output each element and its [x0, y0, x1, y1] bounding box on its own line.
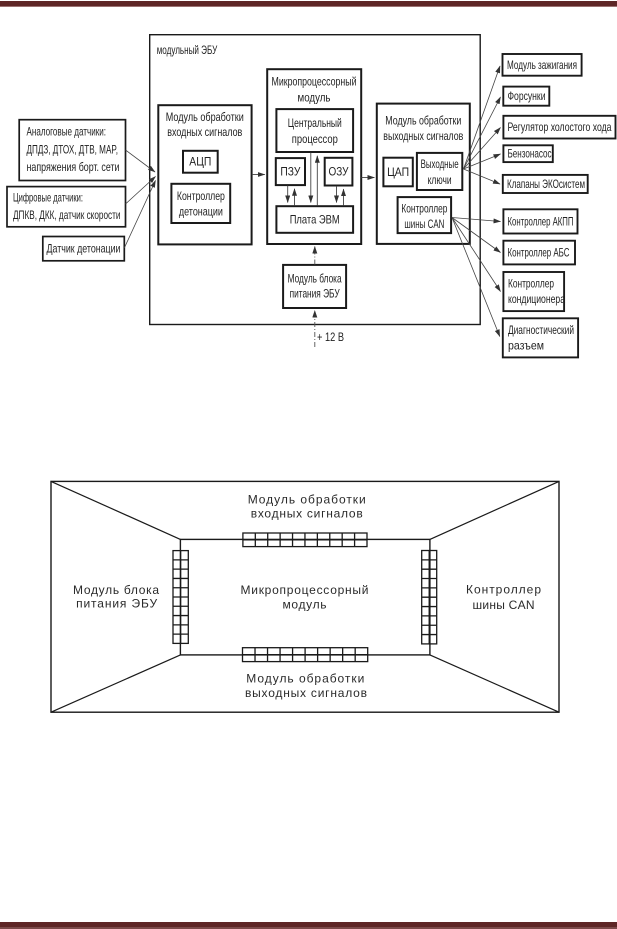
svg-text:Микропроцессорный: Микропроцессорный [272, 74, 357, 88]
svg-text:АЦП: АЦП [189, 155, 211, 169]
svg-text:Регулятор холостого хода: Регулятор холостого хода [508, 120, 612, 134]
svg-text:разъем: разъем [508, 338, 544, 352]
svg-text:процессор: процессор [292, 132, 338, 146]
svg-text:модульный ЭБУ: модульный ЭБУ [157, 43, 218, 57]
svg-text:ПЗУ: ПЗУ [280, 164, 300, 178]
svg-text:Модуль блока: Модуль блока [288, 272, 342, 286]
svg-text:Модуль обработки: Модуль обработки [246, 671, 364, 685]
svg-text:Контроллер: Контроллер [177, 189, 225, 203]
svg-text:детонации: детонации [179, 204, 223, 218]
svg-text:Диагностический: Диагностический [508, 323, 574, 337]
svg-text:шины CAN: шины CAN [473, 598, 535, 612]
svg-text:кондиционера: кондиционера [508, 292, 565, 306]
svg-text:Модуль блока: Модуль блока [73, 583, 159, 597]
svg-text:Форсунки: Форсунки [508, 89, 546, 103]
svg-text:Бензонасос: Бензонасос [508, 147, 552, 161]
svg-text:Цифровые датчики:: Цифровые датчики: [13, 190, 83, 204]
svg-text:питания ЭБУ: питания ЭБУ [290, 287, 340, 301]
svg-text:Выходные: Выходные [421, 157, 459, 171]
svg-text:ДПДЗ, ДТОХ, ДТВ, MAP,: ДПДЗ, ДТОХ, ДТВ, MAP, [27, 142, 119, 156]
svg-text:Датчик детонации: Датчик детонации [47, 241, 121, 255]
svg-text:ДПКВ, ДКК, датчик скорости: ДПКВ, ДКК, датчик скорости [13, 208, 121, 222]
svg-text:входных сигналов: входных сигналов [167, 125, 242, 139]
svg-text:Модуль зажигания: Модуль зажигания [507, 58, 577, 72]
svg-text:Модуль обработки: Модуль обработки [166, 110, 244, 124]
svg-text:ОЗУ: ОЗУ [329, 164, 349, 178]
svg-text:шины CAN: шины CAN [404, 217, 444, 231]
svg-text:Контроллер: Контроллер [508, 276, 554, 290]
svg-text:Контроллер: Контроллер [401, 201, 447, 215]
svg-text:ключи: ключи [428, 173, 452, 187]
svg-text:Микропроцессорный: Микропроцессорный [241, 583, 369, 597]
svg-text:Контроллер АБС: Контроллер АБС [508, 245, 570, 259]
svg-text:+ 12 В: + 12 В [317, 330, 344, 344]
svg-text:напряжения борт. сети: напряжения борт. сети [27, 160, 120, 174]
svg-text:ЦАП: ЦАП [387, 165, 409, 179]
svg-text:входных сигналов: входных сигналов [251, 507, 363, 521]
svg-text:Центральный: Центральный [288, 116, 342, 130]
svg-text:Модуль обработки: Модуль обработки [385, 114, 461, 128]
svg-text:модуль: модуль [298, 91, 331, 105]
svg-text:Контроллер АКПП: Контроллер АКПП [508, 214, 574, 228]
svg-text:Модуль обработки: Модуль обработки [248, 492, 366, 506]
svg-text:Клапаны ЭКОсистем: Клапаны ЭКОсистем [507, 177, 585, 191]
svg-text:Контроллер: Контроллер [466, 582, 541, 596]
svg-text:выходных сигналов: выходных сигналов [383, 129, 463, 143]
svg-text:Плата ЭВМ: Плата ЭВМ [290, 213, 340, 227]
svg-text:питания ЭБУ: питания ЭБУ [76, 597, 157, 611]
svg-text:модуль: модуль [283, 598, 327, 612]
svg-text:Аналоговые датчики:: Аналоговые датчики: [27, 124, 107, 138]
svg-text:выходных сигналов: выходных сигналов [245, 686, 367, 700]
